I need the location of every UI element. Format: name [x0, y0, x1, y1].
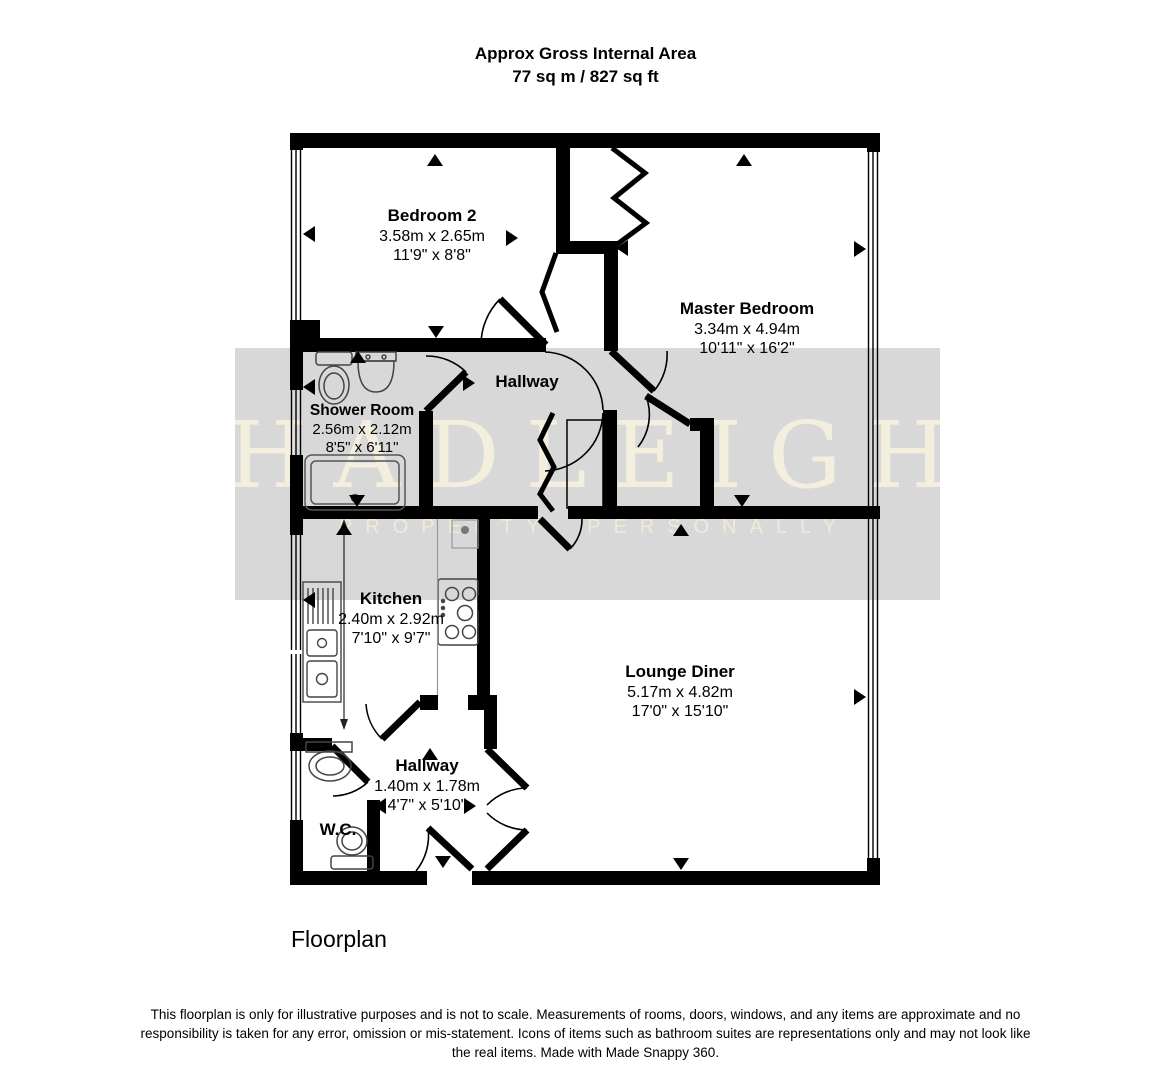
- room-dim-imperial: 4'7" x 5'10": [374, 796, 480, 816]
- room-label-master-bedroom: Master Bedroom 3.34m x 4.94m 10'11" x 16…: [680, 299, 814, 359]
- room-dim-imperial: 17'0" x 15'10": [625, 702, 735, 722]
- room-dim-imperial: 10'11" x 16'2": [680, 339, 814, 359]
- floorplan-svg: [0, 0, 1171, 1080]
- page-title: Approx Gross Internal Area 77 sq m / 827…: [0, 43, 1171, 89]
- disclaimer-text: This floorplan is only for illustrative …: [136, 1006, 1036, 1063]
- floorplan-page: Approx Gross Internal Area 77 sq m / 827…: [0, 0, 1171, 1080]
- hob-icon: [438, 579, 478, 645]
- room-name: Shower Room: [310, 402, 414, 421]
- room-dim-imperial: 11'9" x 8'8": [379, 246, 485, 266]
- toilet-icon: [316, 352, 352, 404]
- room-label-hallway-lower: Hallway 1.40m x 1.78m 4'7" x 5'10": [374, 756, 480, 816]
- room-label-bedroom-2: Bedroom 2 3.58m x 2.65m 11'9" x 8'8": [379, 206, 485, 266]
- room-dim-metric: 5.17m x 4.82m: [625, 683, 735, 703]
- room-name: Master Bedroom: [680, 299, 814, 320]
- room-name: Lounge Diner: [625, 662, 735, 683]
- room-label-lounge-diner: Lounge Diner 5.17m x 4.82m 17'0" x 15'10…: [625, 662, 735, 722]
- room-label-wc: W.C.: [320, 820, 357, 841]
- room-name: W.C.: [320, 820, 357, 841]
- room-dim-metric: 2.56m x 2.12m: [310, 421, 414, 439]
- room-dim-metric: 3.58m x 2.65m: [379, 227, 485, 247]
- room-name: Bedroom 2: [379, 206, 485, 227]
- room-dim-metric: 1.40m x 1.78m: [374, 777, 480, 797]
- room-dim-imperial: 8'5" x 6'11": [310, 439, 414, 457]
- room-name: Hallway: [374, 756, 480, 777]
- room-label-hallway-upper: Hallway: [495, 372, 558, 393]
- room-name: Hallway: [495, 372, 558, 393]
- room-dim-imperial: 7'10" x 9'7": [338, 629, 444, 649]
- room-name: Kitchen: [338, 589, 444, 610]
- bifold-doors: [540, 148, 646, 511]
- gross-area-title: Approx Gross Internal Area: [0, 43, 1171, 66]
- room-dim-metric: 3.34m x 4.94m: [680, 320, 814, 340]
- room-label-shower-room: Shower Room 2.56m x 2.12m 8'5" x 6'11": [310, 402, 414, 458]
- floorplan-caption: Floorplan: [291, 926, 387, 953]
- gross-area-value: 77 sq m / 827 sq ft: [0, 66, 1171, 89]
- room-label-kitchen: Kitchen 2.40m x 2.92m 7'10" x 9'7": [338, 589, 444, 649]
- room-dim-metric: 2.40m x 2.92m: [338, 610, 444, 630]
